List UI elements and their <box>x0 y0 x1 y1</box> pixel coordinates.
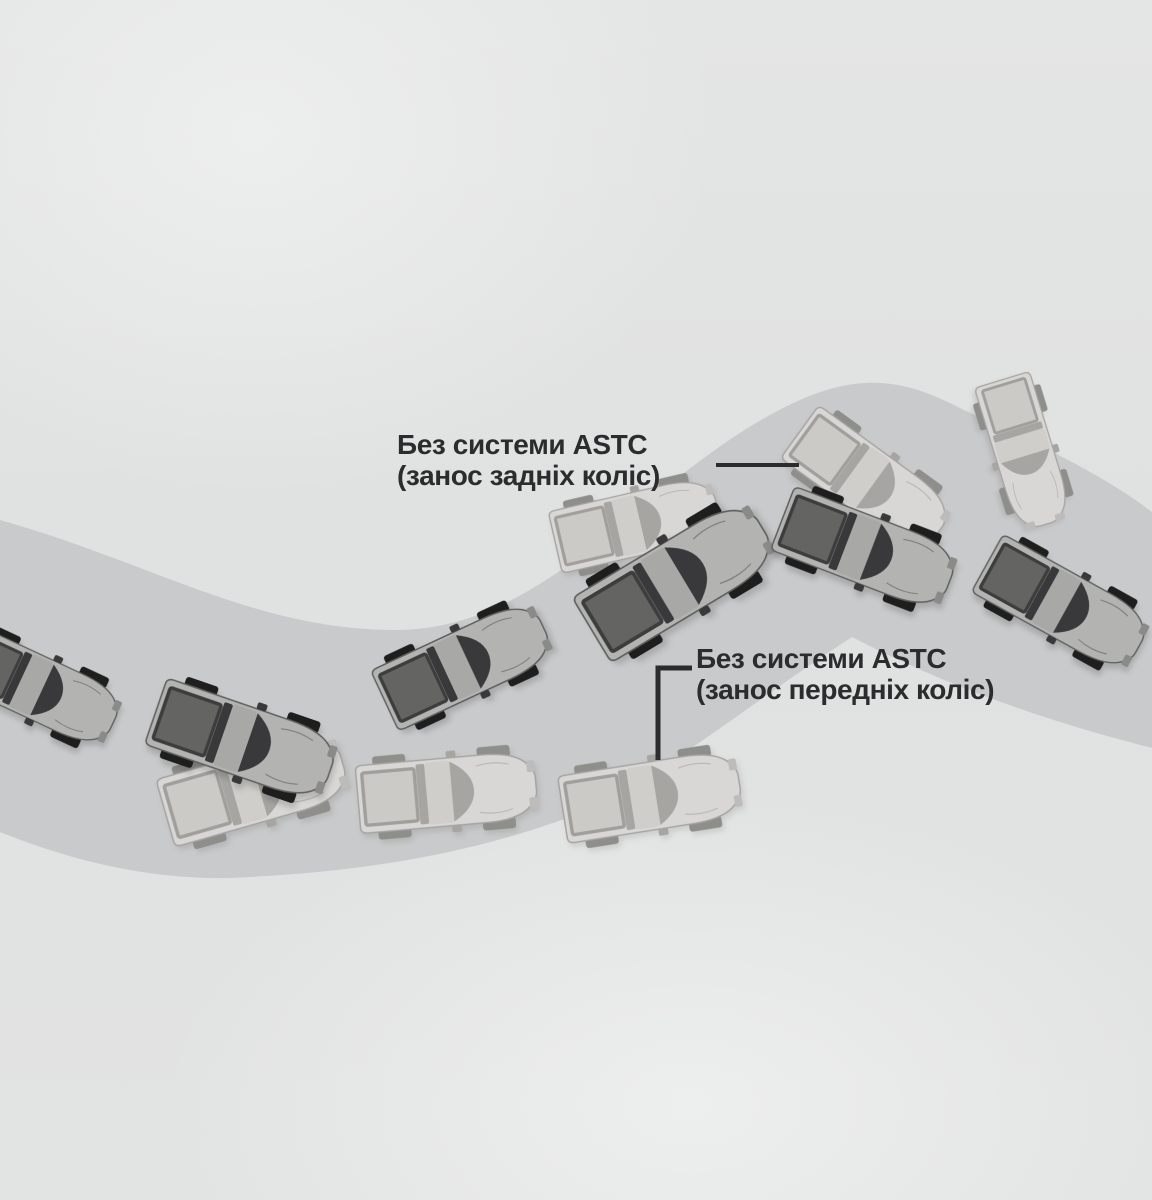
label-front-skid: Без системи ASTC (занос передніх коліс) <box>696 643 994 705</box>
astc-diagram: { "labels": { "rear_skid": { "line1": "Б… <box>0 0 1152 1200</box>
scene-canvas <box>0 0 1152 1200</box>
label-front-skid-line1: Без системи ASTC <box>696 643 994 674</box>
label-rear-skid: Без системи ASTC (занос задніх коліс) <box>397 429 660 491</box>
label-front-skid-line2: (занос передніх коліс) <box>696 674 994 705</box>
label-rear-skid-line2: (занос задніх коліс) <box>397 460 660 491</box>
ghost-valley-2 <box>354 743 539 842</box>
label-rear-skid-line1: Без системи ASTC <box>397 429 660 460</box>
